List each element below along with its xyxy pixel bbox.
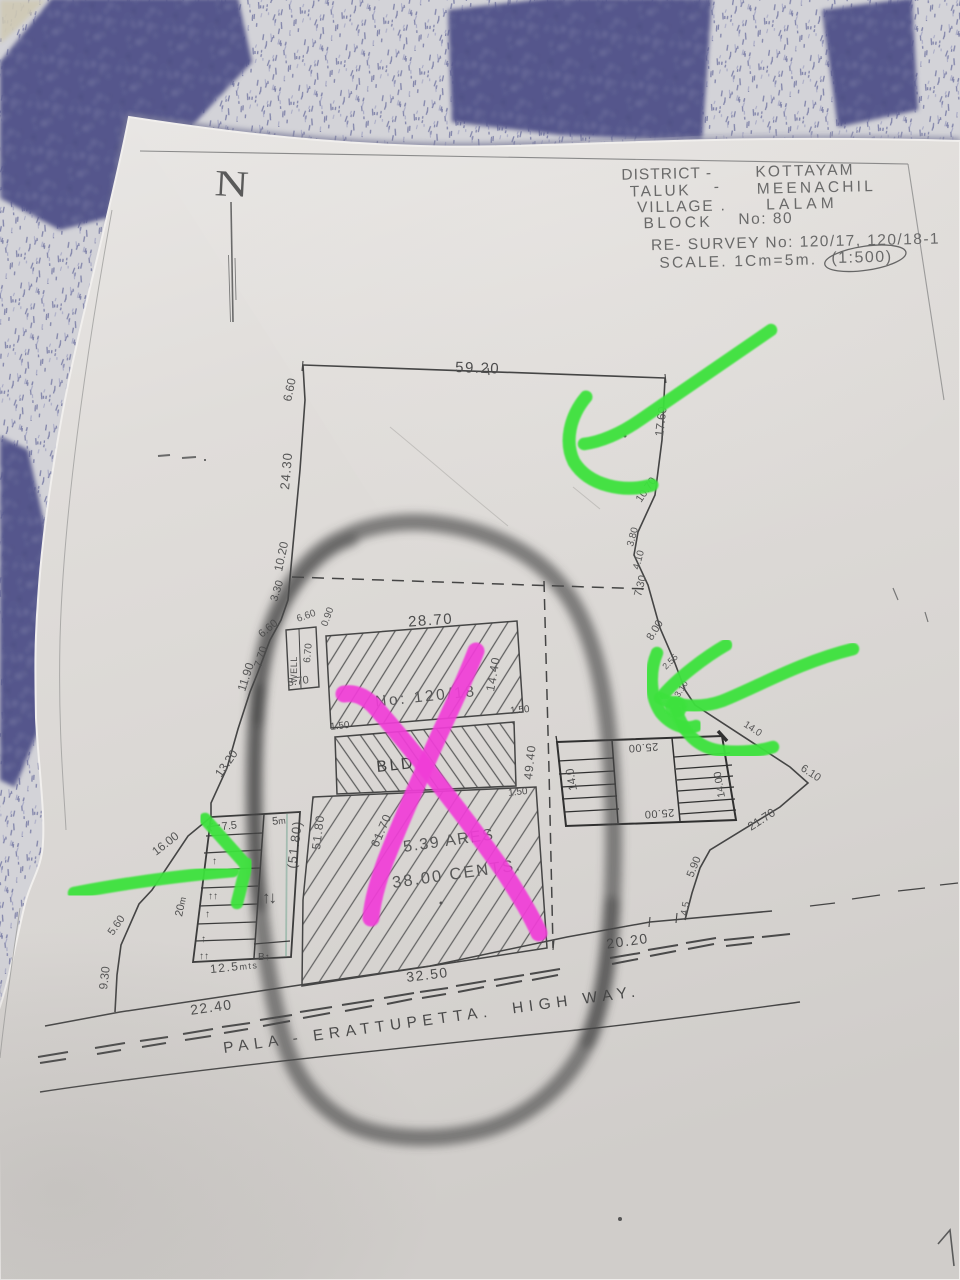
svg-text:N: N [214,163,250,206]
svg-text:SCALE. 1Cm=5m.: SCALE. 1Cm=5m. [659,251,817,272]
svg-text:↑: ↑ [212,856,217,867]
svg-text:↑↑: ↑↑ [208,891,218,902]
svg-text:↑: ↑ [205,909,210,920]
svg-text:-: - [714,179,721,196]
svg-text:28.70: 28.70 [408,610,454,630]
svg-text:1.50: 1.50 [510,704,531,717]
svg-text:BLOCK: BLOCK [643,214,713,233]
svg-text:↑: ↑ [201,934,206,945]
svg-text:1.50: 1.50 [330,720,351,733]
svg-text:DISTRICT -: DISTRICT - [621,165,712,184]
svg-text:No: 80: No: 80 [738,210,793,228]
svg-text:59.20: 59.20 [455,359,501,378]
svg-text:25.00: 25.00 [644,806,675,820]
svg-text:6.70: 6.70 [302,642,315,663]
svg-text:25.00: 25.00 [628,740,659,754]
